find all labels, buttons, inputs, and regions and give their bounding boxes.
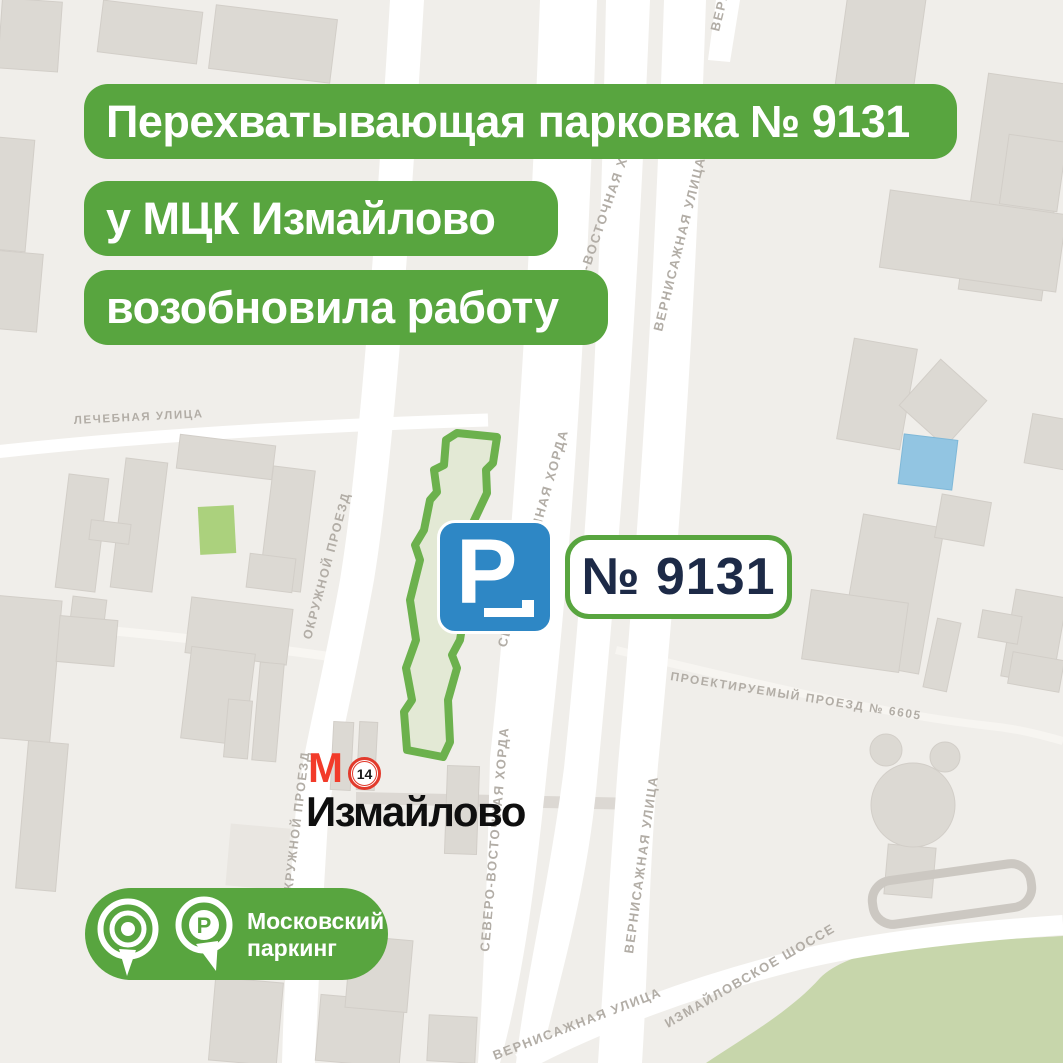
small-park: [198, 505, 236, 555]
brand-name-line-1: Московский: [247, 908, 384, 935]
brand-name: Московский паркинг: [247, 908, 384, 962]
parking-underscore: [484, 608, 526, 617]
infographic-root: ЛЕЧЕБНАЯ УЛИЦА ОКРУЖНОЙ ПРОЕЗД ОКРУЖНОЙ …: [0, 0, 1063, 1063]
round-building: [871, 763, 955, 847]
headline-line-2: у МЦК Измайлово: [106, 193, 495, 245]
parking-number-label: № 9131: [581, 547, 775, 607]
brand-pin-letter: Р: [197, 913, 212, 938]
headline-banner-2: у МЦК Измайлово: [84, 181, 558, 256]
metro-line-badge: 14: [348, 757, 381, 790]
metro-icon: М: [308, 747, 343, 789]
parking-number-badge: № 9131: [565, 535, 792, 619]
metro-line-number: 14: [352, 761, 377, 786]
metro-station-name: Измайлово: [306, 788, 525, 836]
parking-pin-icon: Р: [179, 900, 230, 972]
moscow-parking-logo: Р Московский паркинг: [85, 888, 388, 980]
parking-sign-icon: P: [440, 523, 550, 631]
parking-sign: P: [437, 520, 553, 634]
parking-underscore-nub: [522, 600, 534, 617]
pond: [898, 434, 958, 490]
transport-rings-icon: [101, 902, 156, 977]
headline-banner-1: Перехватывающая парковка № 9131: [84, 84, 957, 159]
brand-name-line-2: паркинг: [247, 935, 384, 962]
headline-banner-3: возобновила работу: [84, 270, 608, 345]
headline-line-3: возобновила работу: [106, 282, 558, 334]
headline-line-1: Перехватывающая парковка № 9131: [106, 96, 910, 148]
